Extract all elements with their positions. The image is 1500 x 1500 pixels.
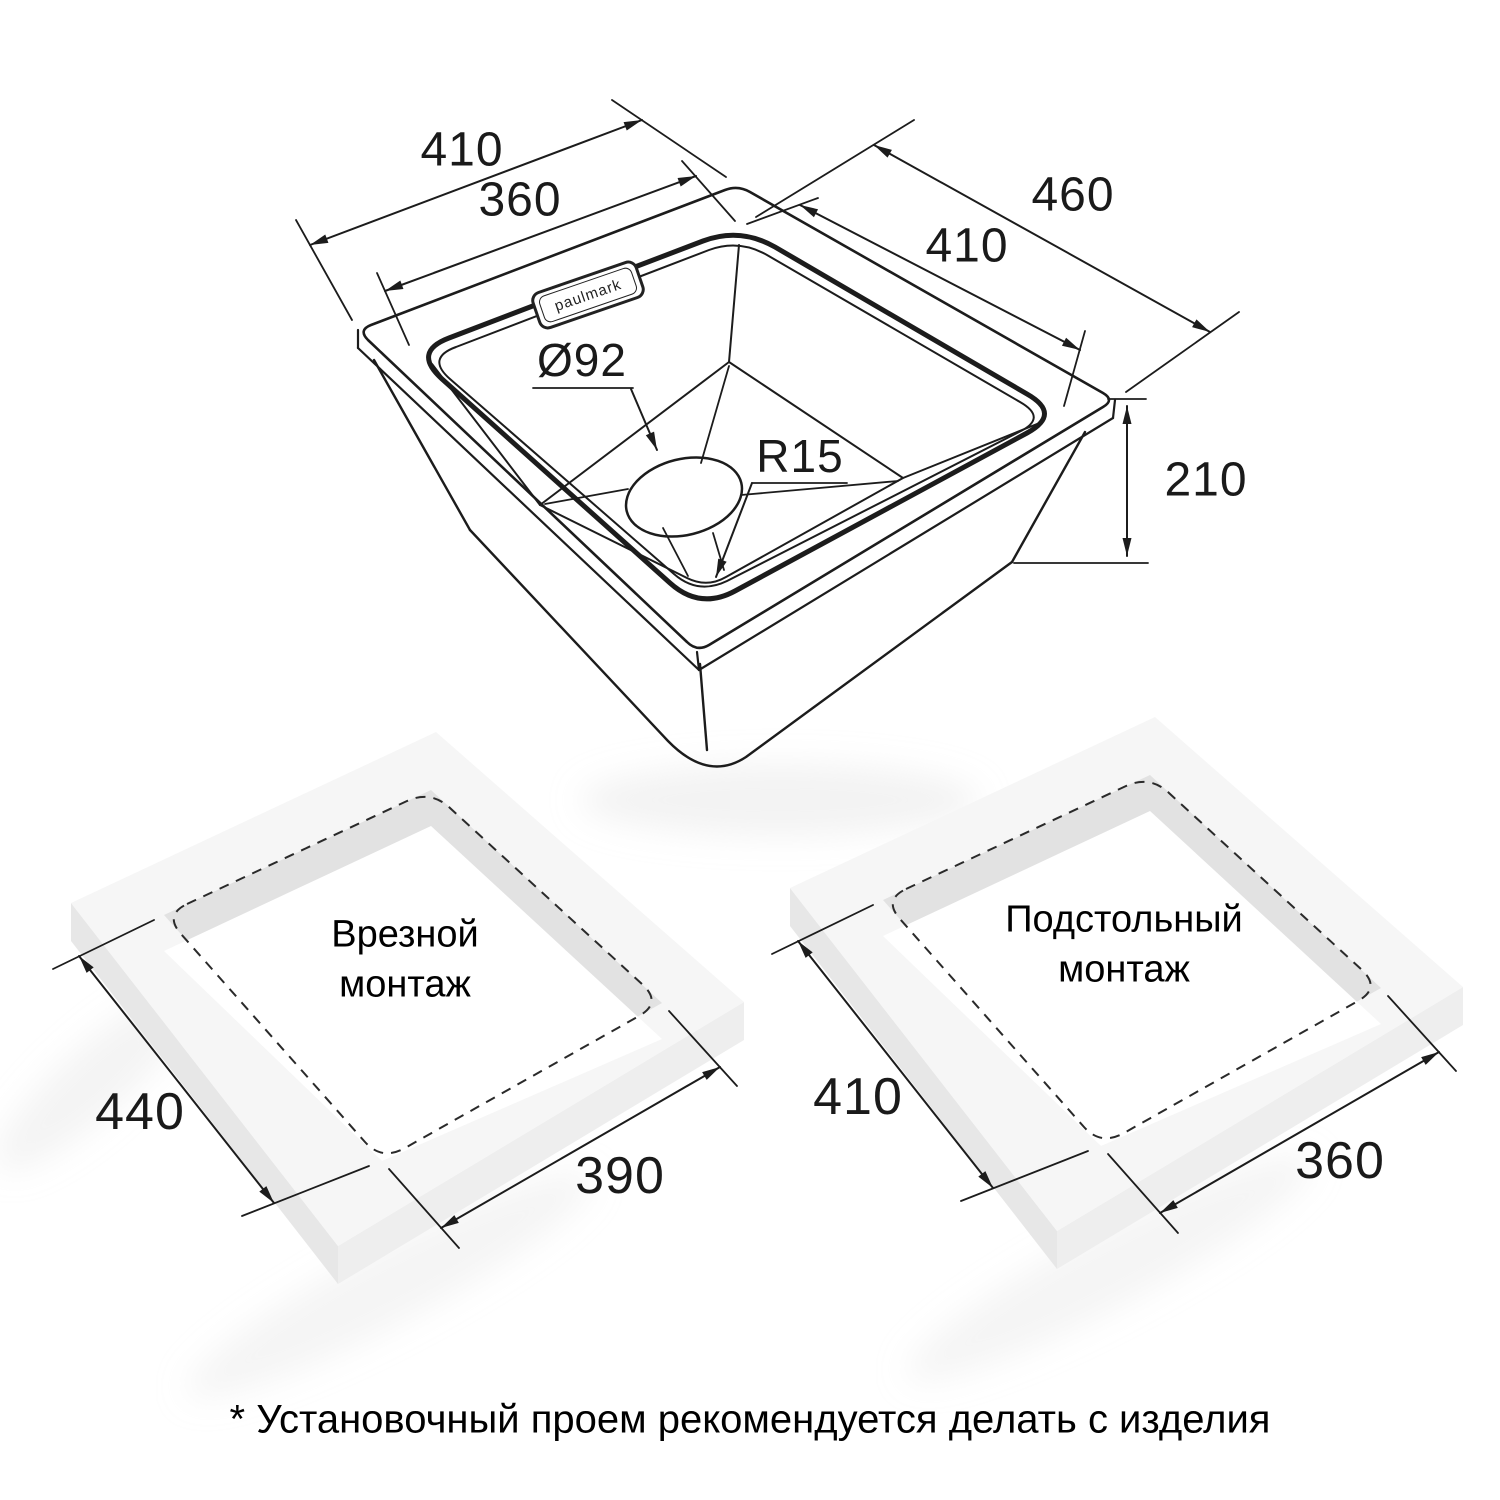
dim-label-inner-width: 360 [478, 173, 561, 228]
footnote: * Установочный проем рекомендуется делат… [230, 1398, 1271, 1443]
under-mount-title-line1: Подстольный [1005, 899, 1243, 942]
under-mount-dim-side: 410 [813, 1067, 903, 1127]
under-mount-dim-front: 360 [1295, 1131, 1385, 1191]
sink-bowl-lip-inner [439, 246, 1033, 587]
technical-drawing-page: paulmark 410 360 460 410 210 Ø92 R15 Вре… [0, 0, 1500, 1500]
dim-label-outer-depth: 460 [1031, 168, 1114, 223]
sink-bottom-creases [545, 366, 898, 576]
drawing-canvas [0, 0, 1500, 1500]
dim-label-inner-depth: 410 [925, 219, 1008, 274]
inset-mount-title-line2: монтаж [339, 964, 471, 1007]
inset-mount-dim-front: 390 [575, 1146, 665, 1206]
corner-radius-label: R15 [756, 429, 843, 483]
inset-mount-title-line1: Врезной [331, 914, 479, 957]
sink-isometric-view [358, 188, 1115, 767]
drain-diameter-label: Ø92 [537, 333, 627, 387]
dim-label-outer-width: 410 [420, 123, 503, 178]
drain-hole [618, 446, 751, 548]
inset-mount-dim-side: 440 [95, 1082, 185, 1142]
under-mount-title-line2: монтаж [1058, 949, 1190, 992]
sink-body [374, 360, 1085, 766]
sink-bowl-lip-outer [429, 235, 1045, 599]
dim-label-height: 210 [1164, 453, 1247, 508]
